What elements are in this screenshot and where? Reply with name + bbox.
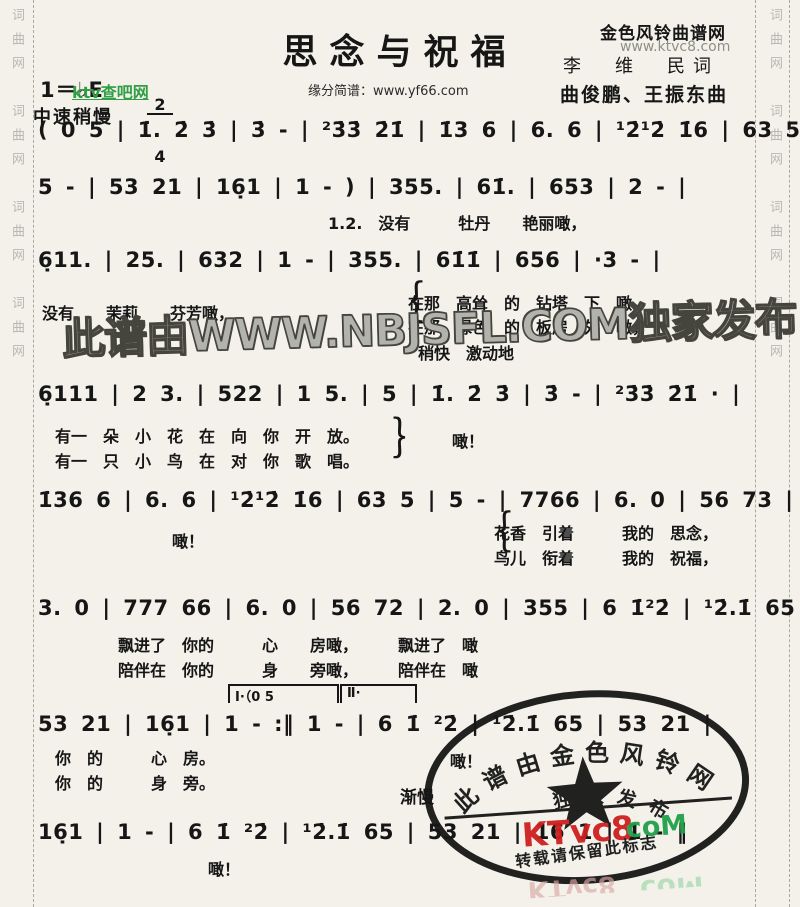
notation-line-6: 3. 0 | 777 66 | 6. 0 | 56 72 | 2. 0 | 35… bbox=[38, 596, 800, 620]
notation-line-4: 6̣111 | 2 3. | 522 | 1 5. | 5 | 1̇. 2̇ 3… bbox=[38, 382, 740, 406]
ktv-green-watermark: ktv查吧网 bbox=[72, 79, 149, 103]
left-margin-divider bbox=[33, 0, 34, 907]
ritardando-marking: 渐慢 bbox=[400, 783, 434, 808]
lyric-line: 花香 引着 我的 思念， bbox=[494, 520, 718, 544]
second-ending-bracket: Ⅱ· bbox=[340, 684, 417, 703]
right-margin-watermark: 词曲网 词曲网 词曲网 词曲网 bbox=[762, 8, 786, 903]
lyricist-credit: 李 维 民词 bbox=[563, 52, 719, 78]
lyric-close-brace: ｝ bbox=[392, 418, 436, 462]
lyric-line: 有一 只 小 鸟 在 对 你 歌 唱。 bbox=[55, 448, 359, 472]
lyric-line: 鸟儿 衔着 我的 祝福， bbox=[494, 545, 718, 569]
time-signature-bottom: 4 bbox=[147, 149, 173, 166]
stamp-brand-green-mirrored: coM bbox=[639, 869, 705, 906]
center-watermark: 此谱由WWW.NBJSFL.COM独家发布 bbox=[61, 287, 734, 368]
publisher-stamp: 此谱由金色风铃网 独家发布 KTvc8 coM 转载请保留此标志 KTvc8 c… bbox=[408, 674, 770, 906]
lyric-line: 你 的 身 旁。 bbox=[55, 770, 215, 794]
notation-line-3: 6̣11. | 25. | 632 | 1 - | 355. | 61̇1̇ |… bbox=[38, 248, 661, 272]
composer-credit: 曲俊鹏、王振东曲 bbox=[560, 80, 728, 107]
lyric-exclamation: 噉！ bbox=[208, 856, 240, 880]
first-ending-bracket: Ⅰ·（0 5 bbox=[228, 684, 339, 703]
time-signature-top: 2 bbox=[147, 97, 173, 116]
notation-line-2: 5 - | 53 21 | 16̣1 | 1 - ) | 355. | 61̇.… bbox=[38, 175, 686, 199]
lyric-exclamation: 噉！ bbox=[172, 528, 204, 552]
lyric-line: 陪伴在 你的 身 旁噉， 陪伴在 噉 bbox=[118, 657, 478, 681]
sheet-music-page: 词曲网 词曲网 词曲网 词曲网 词曲网 词曲网 词曲网 词曲网 1＝♭E 2 4… bbox=[0, 0, 800, 907]
lyric-line: 有一 朵 小 花 在 向 你 开 放。 bbox=[55, 423, 359, 447]
notation-line-5: 1̇36 6 | 6. 6 | ¹2̇¹2̇ 1̇6 | 63 5 | 5 - … bbox=[38, 488, 793, 512]
lyric-line: 飘进了 你的 心 房噉， 飘进了 噉 bbox=[118, 632, 478, 656]
notation-line-1: ( 0 5 | 1̇. 2̇ 3̇ | 3̇ - | ²3̇3̇ 2̇1̇ | … bbox=[38, 118, 800, 142]
subtitle-site-watermark: 缘分简谱：www.yf66.com bbox=[308, 80, 469, 99]
stamp-brand-red-mirrored: KTvc8 bbox=[527, 869, 617, 905]
lyric-line: 你 的 心 房。 bbox=[55, 745, 215, 769]
left-margin-watermark: 词曲网 词曲网 词曲网 词曲网 bbox=[4, 8, 28, 903]
lyric-exclamation: 噉！ bbox=[452, 428, 484, 452]
lyric-verse-1-2: 1.2. 没有 牡丹 艳丽噉， bbox=[328, 210, 586, 234]
